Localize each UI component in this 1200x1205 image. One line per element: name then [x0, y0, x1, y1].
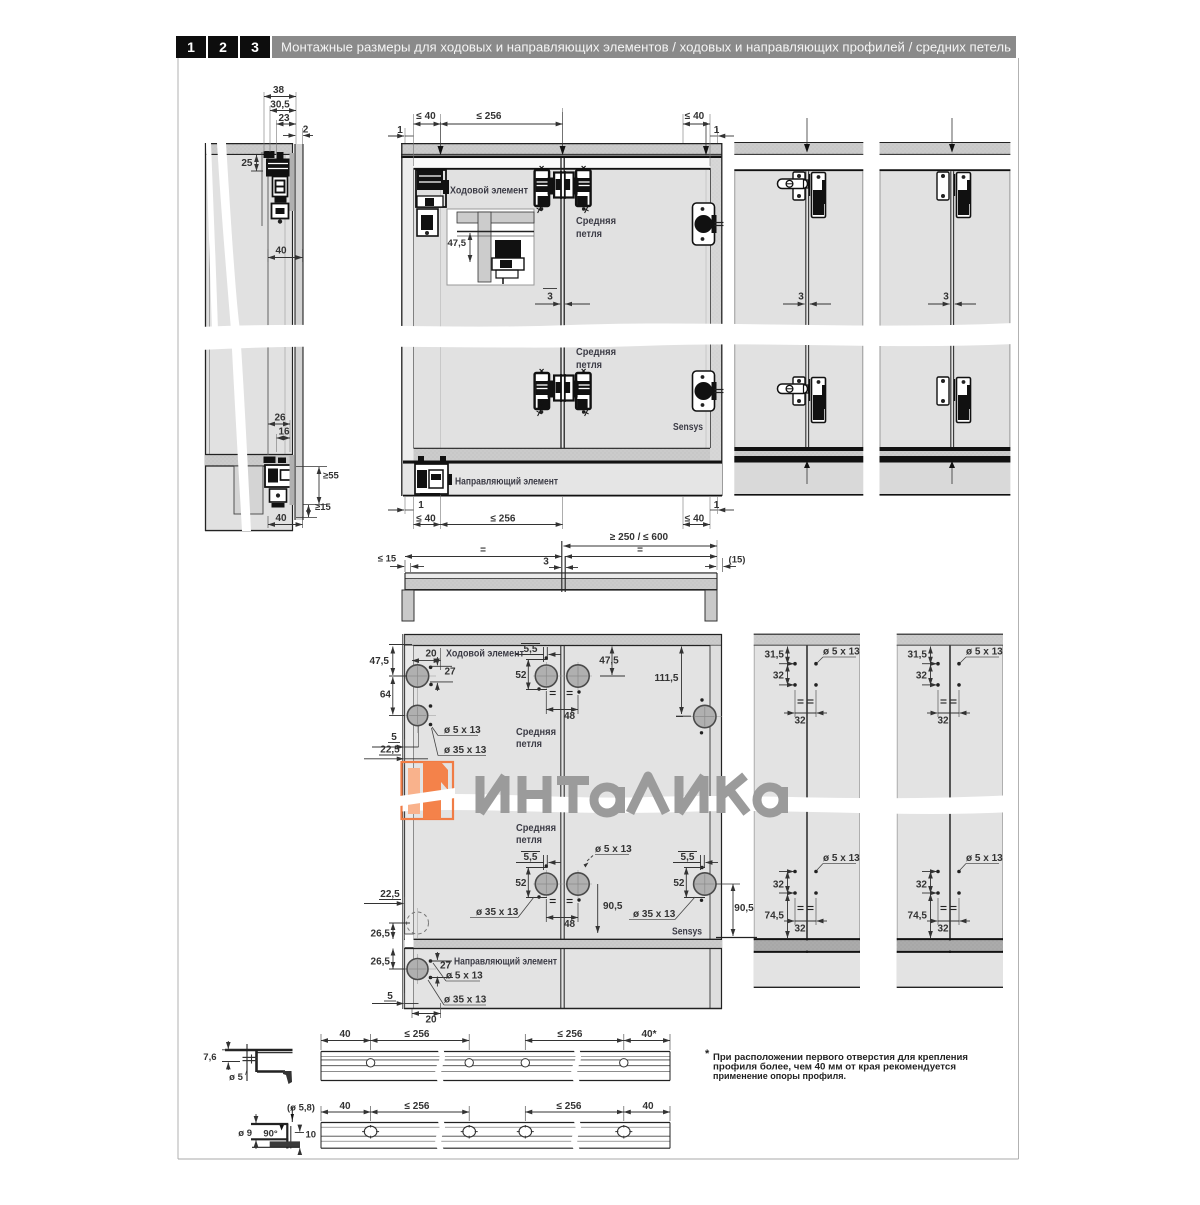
svg-text:26: 26: [274, 413, 286, 424]
svg-text:26,5: 26,5: [371, 929, 391, 940]
svg-text:Sensys: Sensys: [673, 422, 703, 433]
svg-text:=: =: [637, 545, 643, 556]
svg-text:ø 9: ø 9: [238, 1128, 252, 1139]
svg-text:90°: 90°: [263, 1129, 278, 1140]
svg-text:48: 48: [564, 711, 576, 722]
svg-text:ø 5 x 13: ø 5 x 13: [823, 647, 860, 658]
svg-text:ø 35 x 13: ø 35 x 13: [444, 745, 487, 756]
svg-text:32: 32: [937, 924, 949, 935]
svg-text:40: 40: [339, 1029, 351, 1040]
svg-text:111,5: 111,5: [655, 673, 679, 684]
svg-text:профиля более, чем 40 мм от кр: профиля более, чем 40 мм от края рекомен…: [713, 1062, 956, 1072]
svg-text:47,5: 47,5: [448, 238, 467, 249]
svg-text:Средняя: Средняя: [576, 347, 616, 358]
svg-text:≤ 256: ≤ 256: [557, 1101, 582, 1112]
svg-text:3: 3: [943, 292, 949, 303]
svg-text:Средняя: Средняя: [516, 727, 556, 738]
svg-text:Ходовой элемент: Ходовой элемент: [450, 186, 528, 197]
svg-text:52: 52: [515, 670, 527, 681]
svg-text:≤ 40: ≤ 40: [685, 111, 705, 122]
svg-text:32: 32: [773, 671, 785, 682]
svg-text:32: 32: [773, 880, 785, 891]
svg-text:5,5: 5,5: [524, 852, 538, 863]
svg-text:40: 40: [339, 1101, 351, 1112]
svg-text:ø 35 x 13: ø 35 x 13: [633, 909, 676, 920]
svg-text:3: 3: [798, 292, 804, 303]
svg-text:30,5: 30,5: [270, 100, 290, 111]
svg-text:74,5: 74,5: [765, 911, 785, 922]
svg-text:≤ 15: ≤ 15: [378, 554, 397, 565]
svg-text:1: 1: [187, 39, 195, 55]
svg-text:=: =: [480, 545, 486, 556]
svg-text:≤ 256: ≤ 256: [405, 1101, 430, 1112]
svg-text:ø 5 x 13: ø 5 x 13: [966, 853, 1003, 864]
svg-text:25: 25: [241, 158, 253, 169]
svg-text:петля: петля: [516, 739, 542, 750]
svg-text:32: 32: [916, 880, 928, 891]
svg-text:5,5: 5,5: [524, 644, 538, 655]
svg-text:40: 40: [642, 1101, 654, 1112]
svg-text:1: 1: [397, 125, 403, 136]
svg-text:32: 32: [937, 716, 949, 727]
svg-text:5,5: 5,5: [681, 852, 695, 863]
svg-text:петля: петля: [576, 360, 602, 371]
svg-text:≤ 40: ≤ 40: [416, 514, 436, 525]
svg-text:5: 5: [391, 732, 397, 743]
svg-text:*: *: [705, 1048, 710, 1060]
svg-text:32: 32: [916, 671, 928, 682]
svg-text:90,5: 90,5: [734, 903, 754, 914]
svg-text:40*: 40*: [641, 1029, 656, 1040]
svg-text:47,5: 47,5: [599, 656, 619, 667]
svg-text:5: 5: [387, 991, 393, 1002]
svg-text:ø 35 x 13: ø 35 x 13: [444, 995, 487, 1006]
svg-text:≤ 256: ≤ 256: [405, 1029, 430, 1040]
svg-text:2: 2: [303, 125, 309, 136]
svg-text:26,5: 26,5: [371, 957, 391, 968]
svg-text:ø 5 x 13: ø 5 x 13: [823, 853, 860, 864]
svg-text:(15): (15): [729, 555, 746, 566]
svg-text:22,5: 22,5: [380, 889, 400, 900]
svg-text:≤ 256: ≤ 256: [477, 111, 502, 122]
svg-text:90,5: 90,5: [603, 901, 623, 912]
svg-text:≥15: ≥15: [315, 502, 331, 513]
svg-text:3: 3: [251, 39, 259, 55]
svg-text:1: 1: [714, 125, 720, 136]
svg-text:1: 1: [418, 500, 424, 511]
svg-text:38: 38: [273, 85, 285, 96]
svg-text:При расположении первого отвер: При расположении первого отверстия для к…: [713, 1052, 968, 1062]
svg-text:Ходовой элемент: Ходовой элемент: [446, 649, 524, 660]
svg-text:32: 32: [794, 924, 806, 935]
svg-text:40: 40: [275, 513, 287, 524]
svg-text:48: 48: [564, 919, 576, 930]
svg-text:23: 23: [278, 113, 290, 124]
svg-text:≥55: ≥55: [323, 471, 339, 482]
svg-text:≤ 40: ≤ 40: [416, 111, 436, 122]
svg-text:Направляющий элемент: Направляющий элемент: [455, 477, 558, 488]
svg-text:≤ 256: ≤ 256: [491, 514, 516, 525]
svg-text:64: 64: [380, 690, 392, 701]
svg-text:Направляющий элемент: Направляющий элемент: [454, 957, 557, 968]
svg-text:≤ 40: ≤ 40: [685, 514, 705, 525]
svg-text:52: 52: [673, 878, 685, 889]
svg-text:7,6: 7,6: [203, 1052, 216, 1063]
svg-text:Средняя: Средняя: [516, 823, 556, 834]
svg-text:Монтажные размеры для ходовых: Монтажные размеры для ходовых и направля…: [281, 41, 1011, 55]
svg-text:петля: петля: [516, 835, 542, 846]
svg-text:≤ 256: ≤ 256: [558, 1029, 583, 1040]
svg-text:31,5: 31,5: [908, 650, 928, 661]
svg-text:20: 20: [425, 1015, 437, 1026]
svg-text:ø 35 x 13: ø 35 x 13: [476, 907, 519, 918]
svg-text:2: 2: [219, 39, 227, 55]
svg-text:27: 27: [445, 667, 457, 678]
svg-text:74,5: 74,5: [908, 911, 928, 922]
svg-text:31,5: 31,5: [765, 650, 785, 661]
svg-text:ø 5 x 13: ø 5 x 13: [446, 971, 483, 982]
svg-text:22,5: 22,5: [380, 745, 400, 756]
svg-text:≥ 250 / ≤ 600: ≥ 250 / ≤ 600: [610, 532, 669, 543]
svg-text:петля: петля: [576, 229, 602, 240]
svg-text:ø 5 x 13: ø 5 x 13: [966, 647, 1003, 658]
svg-text:1: 1: [714, 500, 720, 511]
svg-text:применение опоры профиля.: применение опоры профиля.: [713, 1071, 846, 1081]
svg-text:47,5: 47,5: [370, 656, 390, 667]
svg-text:(ø 5,8): (ø 5,8): [287, 1103, 315, 1114]
svg-text:32: 32: [794, 716, 806, 727]
svg-text:40: 40: [275, 246, 287, 257]
svg-text:ø 5: ø 5: [229, 1072, 243, 1083]
svg-text:10: 10: [306, 1130, 317, 1141]
svg-text:16: 16: [278, 427, 290, 438]
svg-text:20: 20: [425, 649, 437, 660]
svg-text:Sensys: Sensys: [672, 927, 702, 938]
svg-text:Средняя: Средняя: [576, 216, 616, 227]
svg-text:ø 5 x 13: ø 5 x 13: [595, 844, 632, 855]
svg-text:3: 3: [543, 557, 549, 568]
svg-text:3: 3: [547, 292, 553, 303]
svg-text:52: 52: [515, 878, 527, 889]
svg-text:ø 5 x 13: ø 5 x 13: [444, 725, 481, 736]
